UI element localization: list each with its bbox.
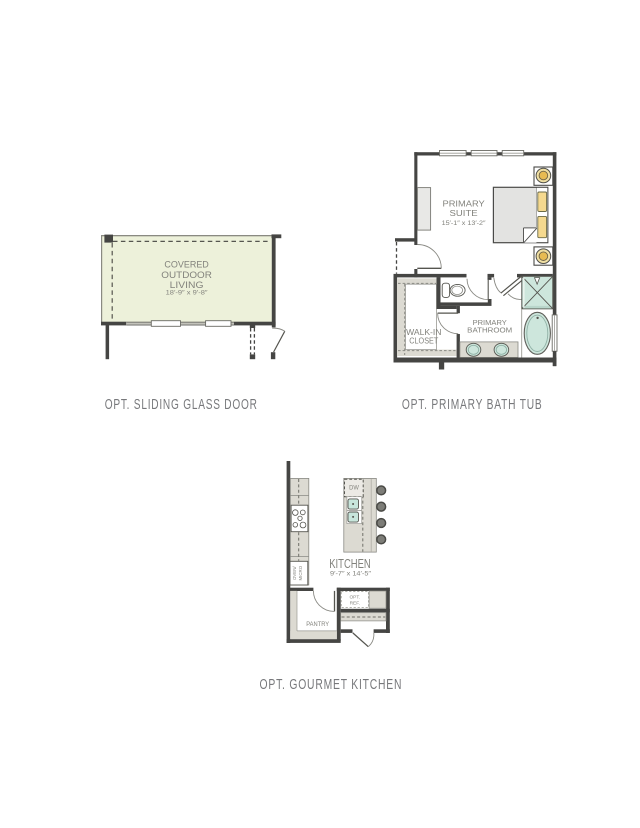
svg-text:OVEN/: OVEN/ <box>292 566 297 580</box>
svg-text:REF.: REF. <box>350 600 360 606</box>
svg-text:PANTRY: PANTRY <box>306 621 329 628</box>
svg-text:OPT. PRIMARY BATH TUB: OPT. PRIMARY BATH TUB <box>402 397 543 413</box>
svg-text:KITCHEN: KITCHEN <box>329 557 371 571</box>
svg-text:OPT.: OPT. <box>349 594 360 600</box>
svg-text:SUITE: SUITE <box>450 208 478 218</box>
svg-text:DW: DW <box>349 485 359 492</box>
svg-text:9′-7″ x 14′-5″: 9′-7″ x 14′-5″ <box>330 571 372 578</box>
svg-text:18′-9″ x 9′-8″: 18′-9″ x 9′-8″ <box>166 289 209 296</box>
svg-text:MICRO: MICRO <box>298 565 303 580</box>
svg-text:15′-1″ x 13′-2″: 15′-1″ x 13′-2″ <box>442 221 487 227</box>
svg-text:OPT. GOURMET KITCHEN: OPT. GOURMET KITCHEN <box>260 677 403 693</box>
svg-text:CLOSET: CLOSET <box>409 336 438 345</box>
svg-text:PRIMARY: PRIMARY <box>443 198 485 208</box>
svg-text:BATHROOM: BATHROOM <box>467 326 512 335</box>
svg-text:OPT. SLIDING GLASS DOOR: OPT. SLIDING GLASS DOOR <box>105 397 258 413</box>
